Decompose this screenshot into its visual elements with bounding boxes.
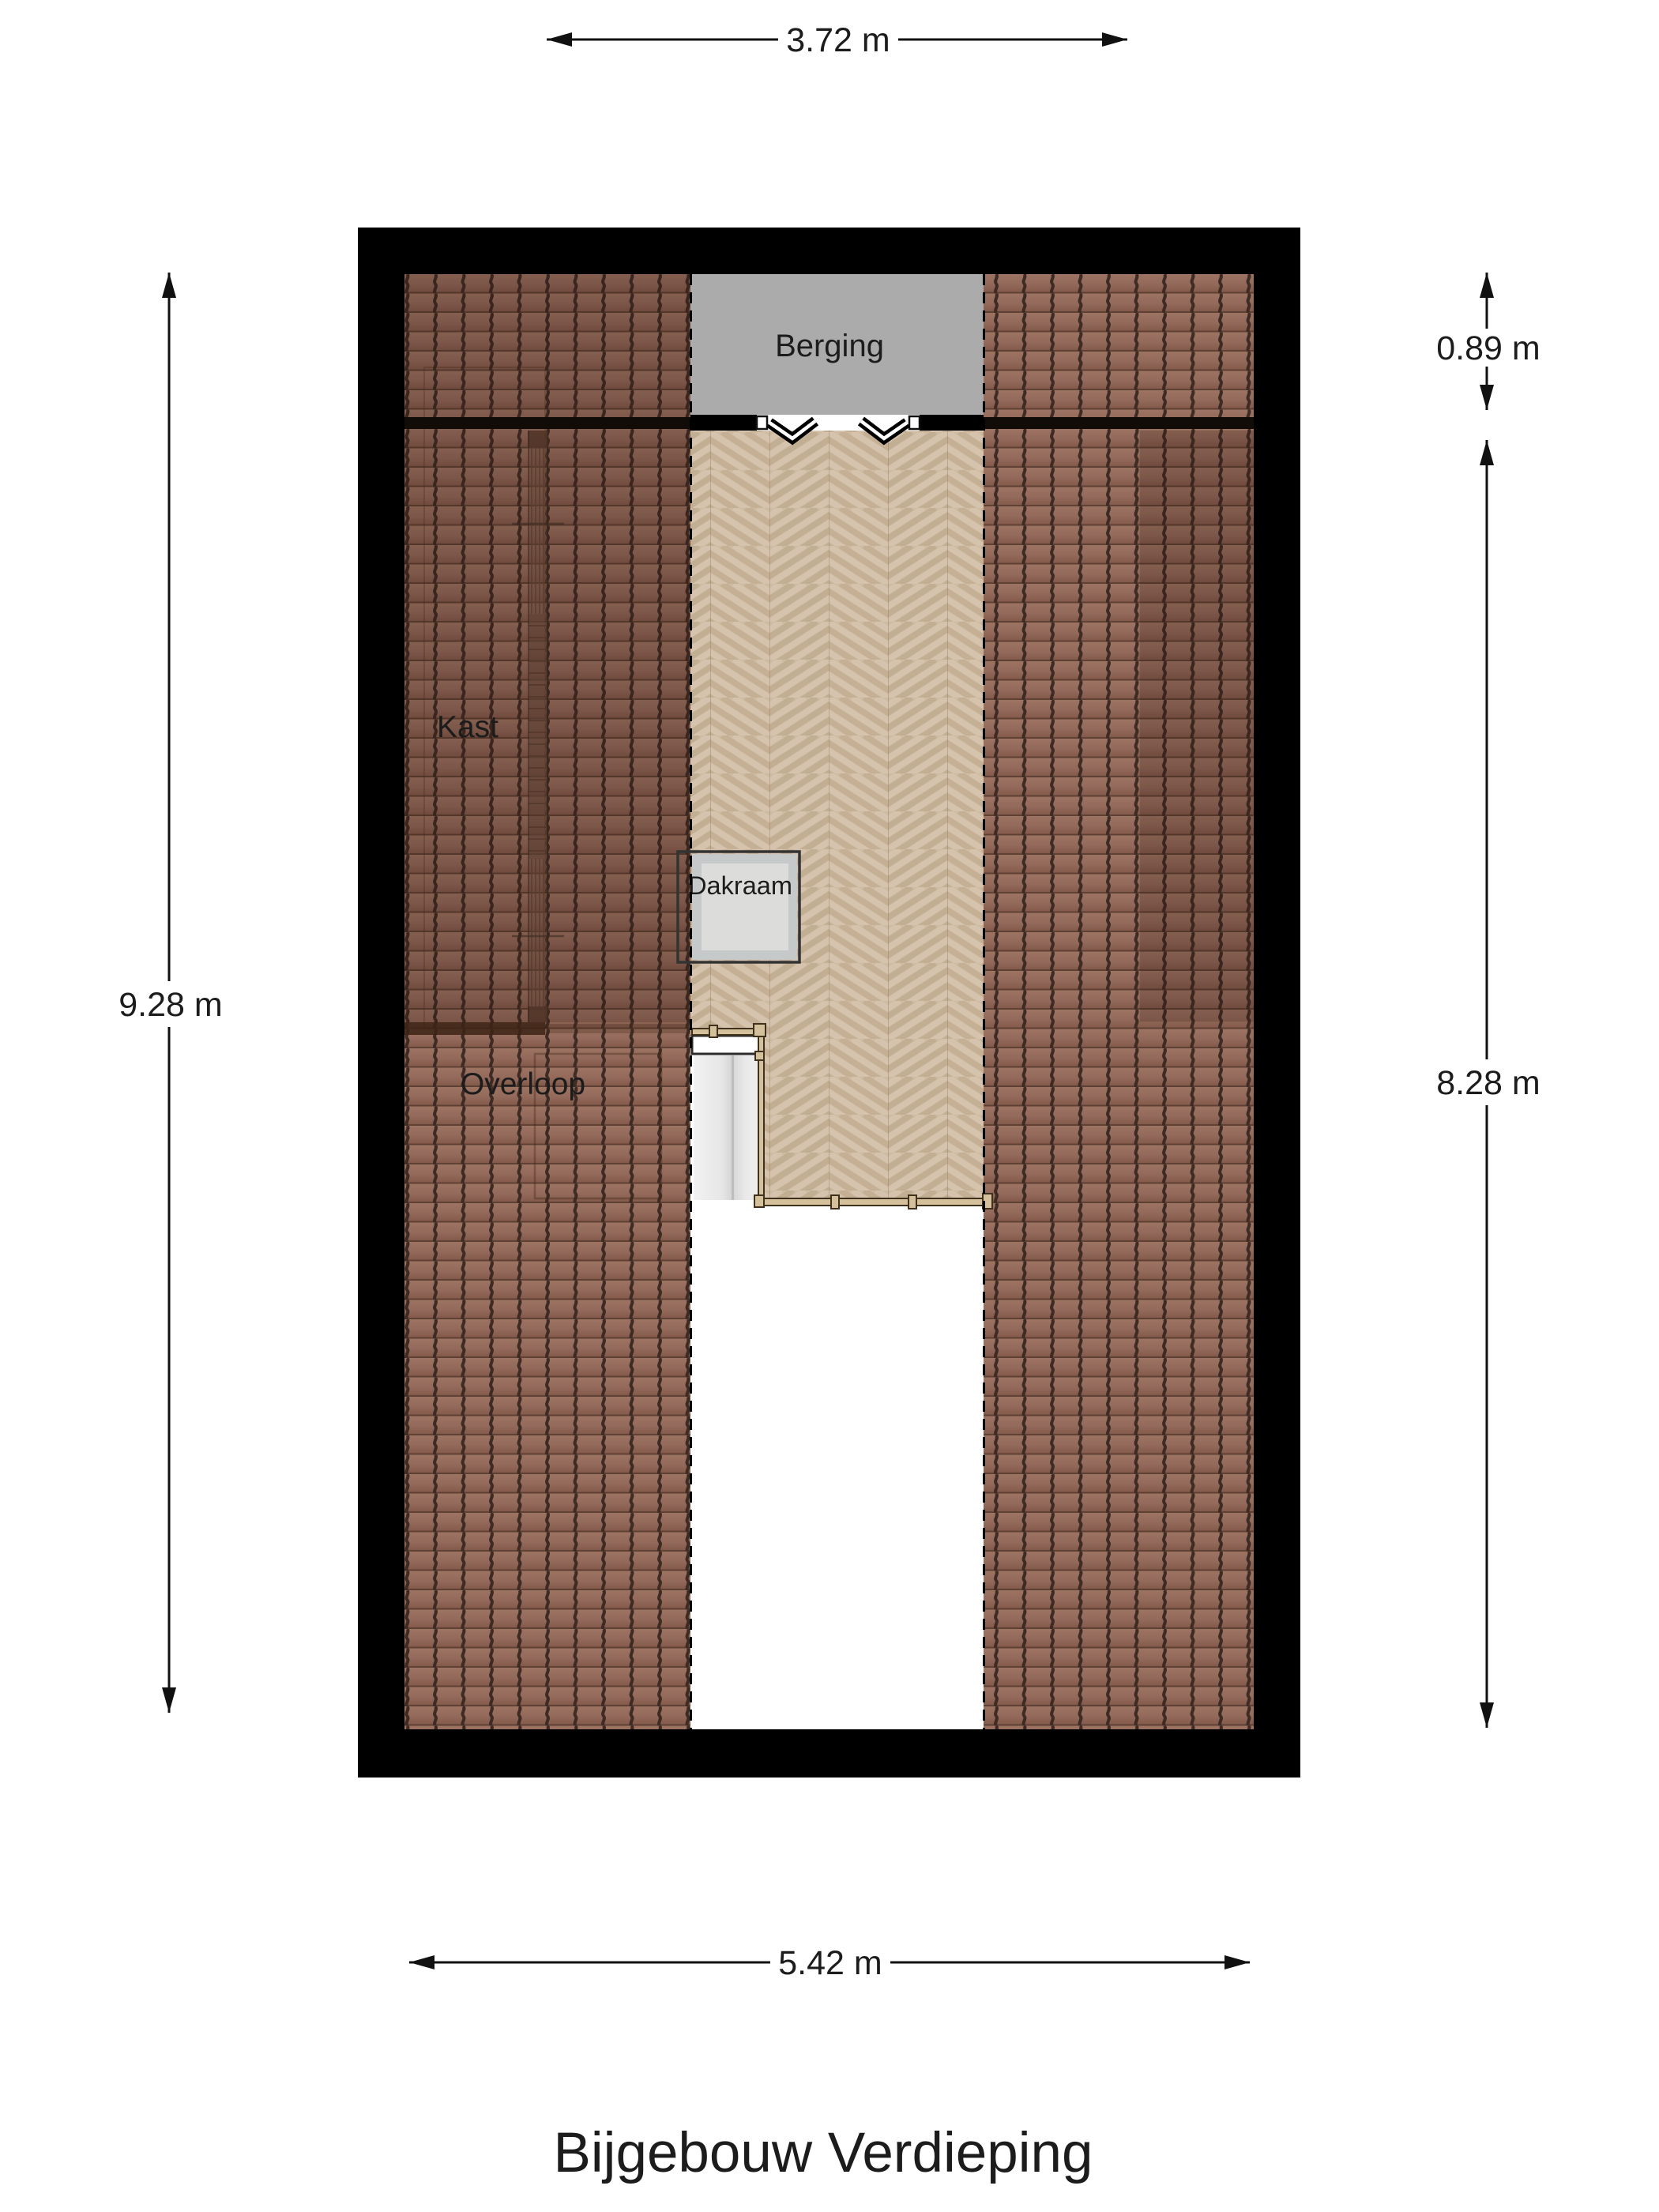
svg-text:8.28 m: 8.28 m [1436,1064,1540,1102]
svg-text:5.42 m: 5.42 m [778,1944,882,1982]
svg-text:0.89 m: 0.89 m [1436,329,1540,367]
svg-text:Berging: Berging [775,329,884,363]
svg-text:Kast: Kast [437,710,498,744]
svg-text:9.28 m: 9.28 m [118,986,222,1024]
svg-text:3.72 m: 3.72 m [786,21,890,59]
svg-text:Bijgebouw Verdieping: Bijgebouw Verdieping [554,2122,1093,2184]
svg-text:Overloop: Overloop [461,1067,585,1101]
svg-text:Dakraam: Dakraam [688,871,792,900]
